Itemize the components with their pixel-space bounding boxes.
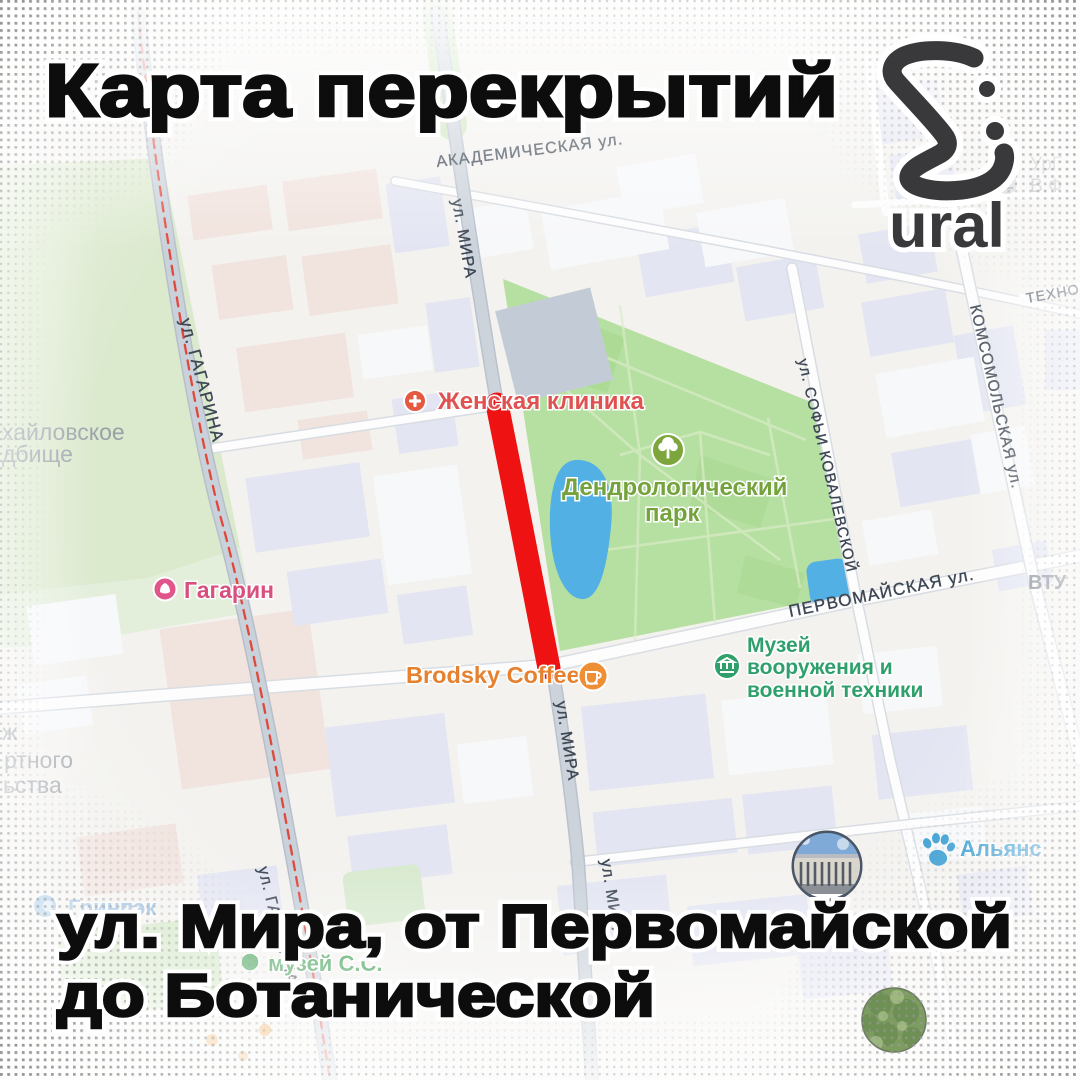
- svg-text:Карта перекрытий: Карта перекрытий: [45, 49, 838, 132]
- svg-text:ural: ural: [889, 191, 1005, 261]
- svg-text:ул. Мира, от Первомайской: ул. Мира, от Первомайской: [57, 893, 1012, 960]
- svg-text:до Ботанической: до Ботанической: [57, 962, 655, 1029]
